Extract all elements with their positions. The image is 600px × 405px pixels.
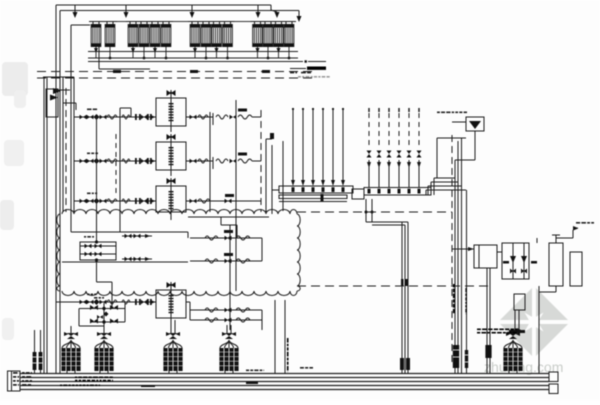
svg-text:zhulong.com: zhulong.com (484, 359, 563, 375)
